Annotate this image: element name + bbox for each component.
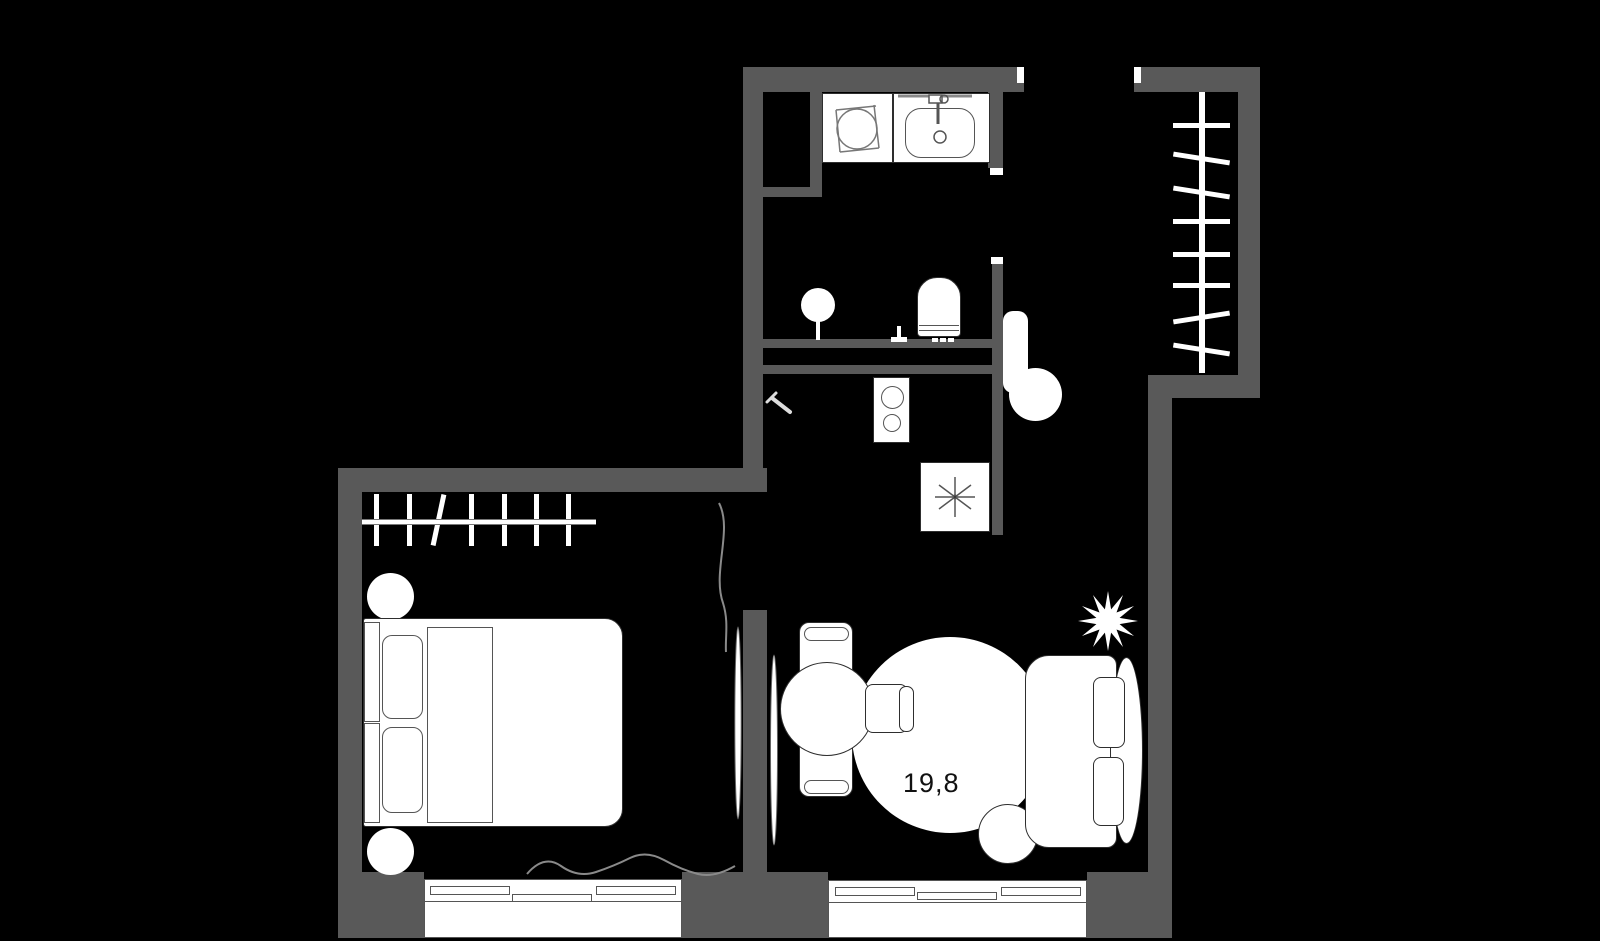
bedroom-window-curtain xyxy=(527,854,735,875)
bathroom-sink-details xyxy=(898,95,972,143)
door-key-icon xyxy=(767,393,790,412)
door-leaf-bedroom xyxy=(735,627,741,819)
kitchen-sink-asterisk xyxy=(935,477,975,517)
door-leaf-living xyxy=(771,655,778,845)
plant xyxy=(1078,591,1138,651)
floor-plan: 19,8 xyxy=(0,0,1600,941)
washing-machine-icon xyxy=(836,105,879,152)
plan-detail-layer xyxy=(0,0,1600,941)
bedroom-door-curve xyxy=(719,503,726,652)
